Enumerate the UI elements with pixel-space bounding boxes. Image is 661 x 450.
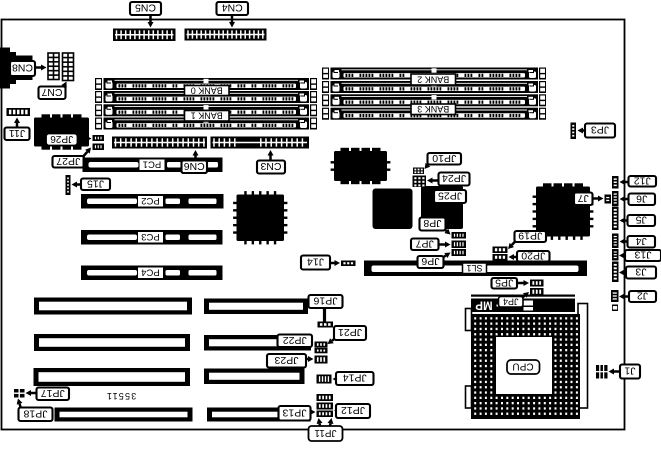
svg-text:JP6: JP6 — [421, 255, 439, 267]
svg-text:JP21: JP21 — [338, 326, 362, 338]
svg-text:JP3: JP3 — [591, 124, 609, 136]
svg-text:JP17: JP17 — [41, 387, 65, 399]
svg-text:CN8: CN8 — [12, 62, 33, 74]
svg-text:BANK 0: BANK 0 — [191, 85, 223, 95]
svg-text:JP22: JP22 — [283, 334, 307, 346]
svg-text:JP24: JP24 — [442, 172, 466, 184]
svg-text:J12: J12 — [634, 174, 651, 186]
svg-text:JP18: JP18 — [23, 407, 47, 419]
svg-text:CPU: CPU — [512, 360, 533, 371]
svg-text:J14: J14 — [307, 256, 324, 268]
svg-text:JP8: JP8 — [423, 217, 441, 229]
svg-text:BANK 3: BANK 3 — [417, 104, 449, 114]
svg-text:J13: J13 — [634, 249, 651, 261]
svg-text:BANK 1: BANK 1 — [191, 111, 223, 121]
svg-text:CN3: CN3 — [260, 160, 281, 172]
svg-text:CN6: CN6 — [184, 160, 205, 172]
svg-text:JP14: JP14 — [343, 372, 367, 384]
svg-text:CN4: CN4 — [222, 2, 243, 14]
svg-text:JP26: JP26 — [50, 133, 73, 144]
svg-text:PC1: PC1 — [143, 158, 161, 169]
svg-text:BANK 2: BANK 2 — [417, 74, 449, 84]
svg-text:PC2: PC2 — [141, 195, 159, 206]
svg-text:JP7: JP7 — [416, 237, 434, 249]
svg-text:JP20: JP20 — [521, 249, 545, 261]
svg-text:JP13: JP13 — [282, 406, 306, 418]
svg-text:JP11: JP11 — [314, 427, 336, 438]
svg-text:JP19: JP19 — [518, 230, 542, 242]
svg-text:SL1: SL1 — [466, 263, 482, 273]
svg-text:PC4: PC4 — [141, 266, 159, 277]
svg-text:JP23: JP23 — [274, 354, 298, 366]
svg-text:J3: J3 — [635, 266, 646, 278]
svg-text:JP27: JP27 — [56, 155, 80, 167]
svg-text:MP: MP — [475, 299, 493, 311]
svg-text:PC3: PC3 — [141, 231, 159, 242]
svg-text:JP5: JP5 — [495, 276, 513, 288]
svg-text:J11: J11 — [9, 127, 25, 139]
svg-text:JP12: JP12 — [341, 404, 365, 416]
svg-text:J15: J15 — [87, 177, 104, 189]
svg-text:J4: J4 — [636, 235, 647, 247]
svg-text:J7: J7 — [578, 192, 589, 204]
svg-text:J1: J1 — [624, 365, 635, 377]
svg-text:J6: J6 — [636, 192, 647, 204]
svg-text:J5: J5 — [636, 214, 647, 226]
svg-text:J2: J2 — [637, 290, 648, 302]
svg-text:JP10: JP10 — [432, 152, 456, 164]
svg-text:JP16: JP16 — [313, 295, 337, 307]
svg-text:CN7: CN7 — [41, 86, 62, 98]
svg-text:CN5: CN5 — [135, 2, 156, 14]
svg-text:35511: 35511 — [106, 391, 136, 401]
svg-text:JP4: JP4 — [503, 297, 519, 307]
svg-text:JP25: JP25 — [438, 190, 462, 202]
